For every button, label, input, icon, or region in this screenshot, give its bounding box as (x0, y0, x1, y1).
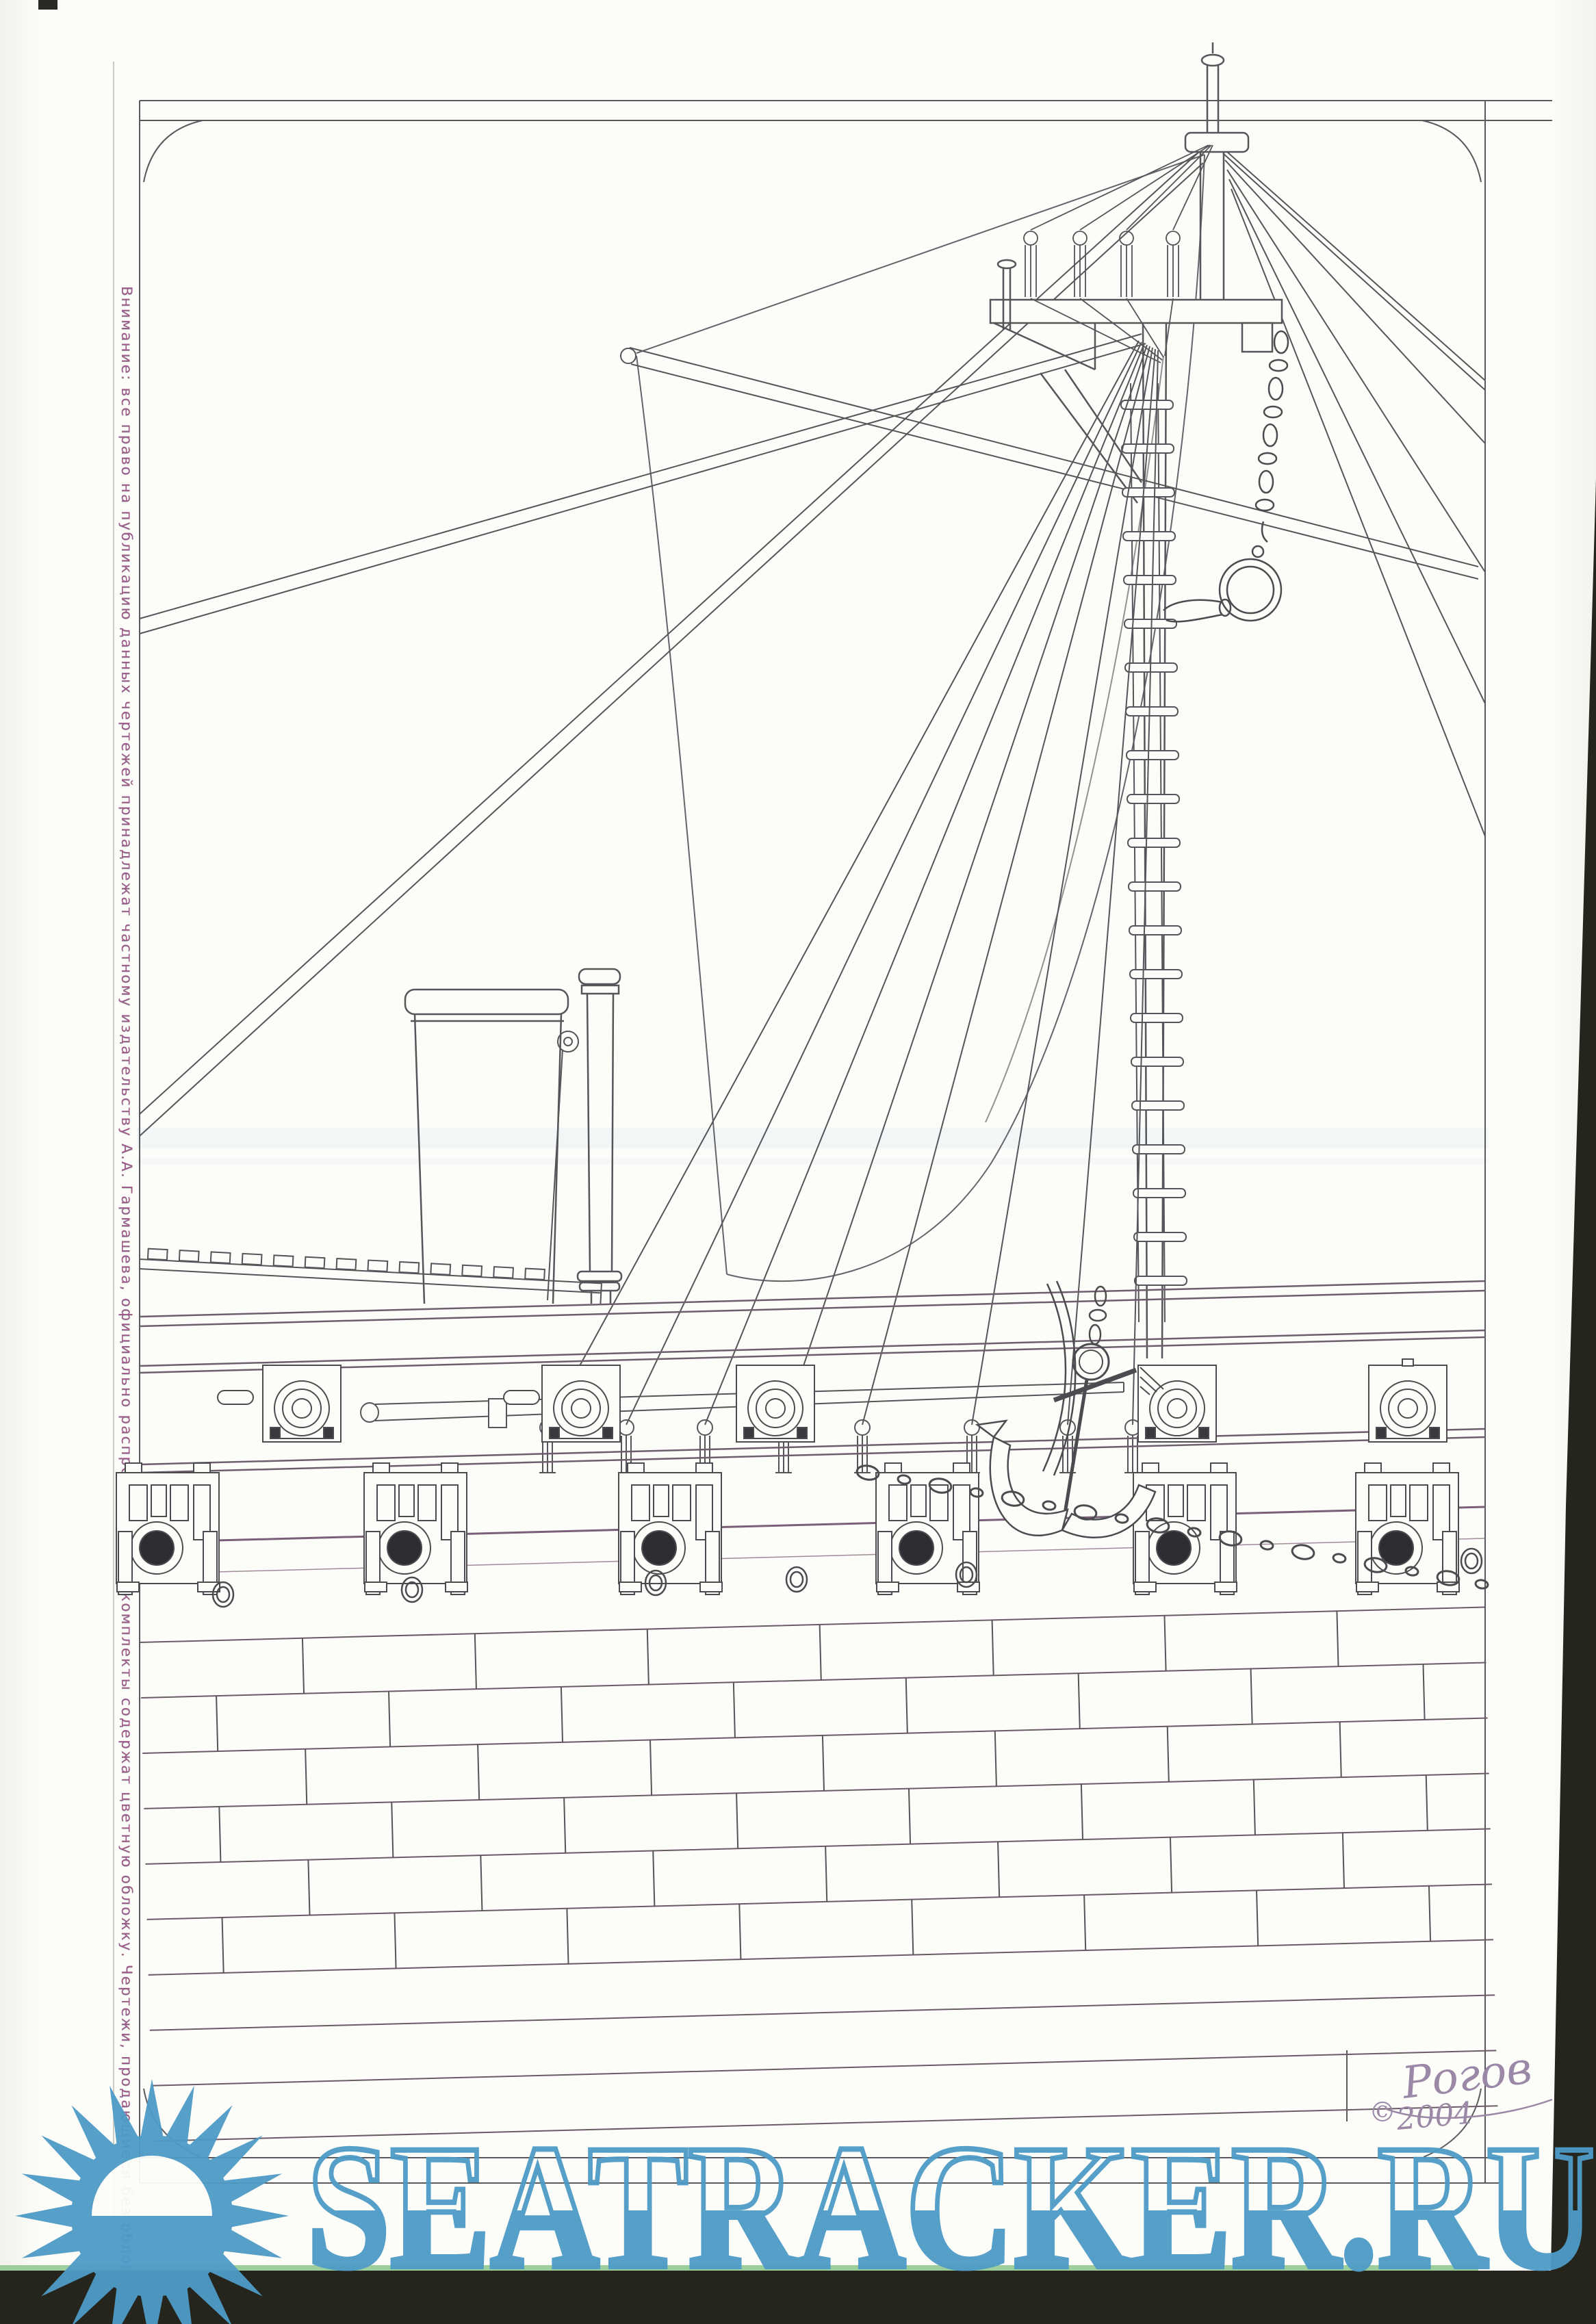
scan-corner-mark (38, 0, 57, 10)
hull-planking (140, 1608, 1497, 2141)
sun-logo-icon (15, 2079, 289, 2324)
bow-rail (138, 1248, 602, 1305)
gun-shield (504, 1365, 620, 1442)
gun-shield (1138, 1365, 1216, 1442)
backstays (1221, 146, 1485, 836)
topmast-deadeyes (1024, 145, 1213, 363)
gun-carriage (619, 1463, 722, 1594)
tackle-block (548, 1031, 578, 1300)
gun-shield (1369, 1359, 1447, 1442)
anchor (977, 1281, 1155, 1538)
gun-carriage (876, 1463, 979, 1594)
gun-carriage (116, 1463, 220, 1594)
scanned-ship-plan-page: Внимание: все право на публикацию данных… (0, 0, 1596, 2324)
yard-spar (621, 348, 1478, 579)
scan-band-right (1551, 479, 1596, 2271)
porthole (786, 1567, 807, 1592)
gun-shield (218, 1365, 341, 1442)
ring-truss (1220, 559, 1281, 621)
porthole (1461, 1549, 1482, 1573)
ship-plan-drawing: Рогов © 2004 SEATRACKER.RU SEATRACKER.RU (0, 0, 1596, 2324)
chain-and-ring (1163, 331, 1288, 621)
watermark: SEATRACKER.RU SEATRACKER.RU (15, 2079, 1595, 2324)
gun-shields (218, 1359, 1447, 1442)
gun-shield (736, 1365, 814, 1442)
gun-carriage (364, 1463, 467, 1594)
